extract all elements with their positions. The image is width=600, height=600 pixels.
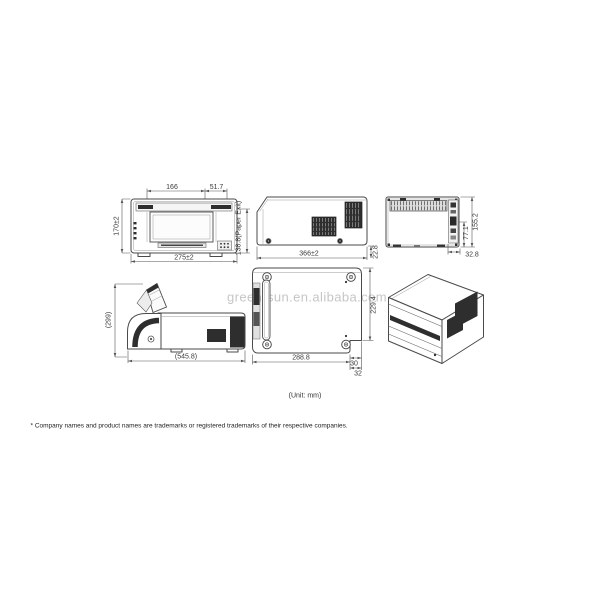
dim-front-opening-right: 51.7: [210, 184, 224, 191]
bottom-view: [253, 268, 362, 353]
dim-rear-connector: 77.1: [463, 226, 470, 240]
front-button-panel: [218, 241, 232, 250]
open-vent-rear: [230, 317, 245, 348]
side-vent-rear: [345, 202, 362, 228]
open-paper-guide: [128, 314, 162, 350]
front-top-pad-right: [211, 205, 231, 209]
open-scrap-tray: [137, 284, 167, 313]
rear-vent-grille: [390, 201, 447, 212]
dim-rear-side-step: 32.8: [465, 252, 479, 259]
dim-paper-exit-height: 138.8(Paper Exit): [236, 201, 243, 255]
front-foot-right: [210, 253, 222, 257]
watermark-text: green-sun.en.alibaba.com: [227, 290, 387, 305]
open-foot-right: [227, 349, 238, 352]
dim-open-depth: (545.8): [175, 354, 197, 361]
rear-view: [386, 197, 459, 247]
open-vent-center: [207, 329, 226, 342]
unit-note: (Unit: mm): [289, 393, 322, 400]
open-foot-left: [171, 349, 182, 352]
dim-front-opening-width: 166: [166, 184, 178, 191]
bottom-scrap-door: [253, 283, 260, 339]
dim-front-width: 275±2: [174, 255, 194, 262]
rear-connector-panel: [449, 200, 459, 243]
bottom-feet: [263, 273, 356, 349]
dim-open-height: (299): [106, 312, 113, 328]
front-door: [150, 212, 213, 242]
isometric-view: [389, 275, 484, 364]
printer-outline-drawing-page: green-sun.en.alibaba.com: [0, 0, 600, 600]
side-view: [257, 197, 367, 245]
rear-power-inlet: [450, 217, 457, 226]
front-foot-left: [138, 253, 150, 257]
dim-bottom-notch-b: 32: [354, 371, 362, 378]
front-top-pad-left: [138, 205, 153, 209]
trademark-footnote: * Company names and product names are tr…: [31, 423, 348, 430]
dim-bottom-notch-a: 30: [350, 361, 358, 368]
dim-side-depth: 366±2: [299, 251, 319, 258]
front-view: [131, 199, 237, 257]
dim-bottom-depth: 229.4: [371, 296, 378, 314]
dim-side-rear-step: 22.8: [373, 245, 380, 259]
bottom-left-slot: [263, 280, 271, 340]
rear-connector-usb: [451, 203, 457, 208]
dim-bottom-width: 288.8: [292, 355, 310, 362]
iso-power-button: [434, 354, 436, 356]
dim-rear-height: 155.2: [473, 213, 480, 231]
dim-front-height: 170±2: [114, 216, 121, 236]
side-vent-center: [312, 217, 336, 236]
dimensional-drawing: green-sun.en.alibaba.com: [0, 0, 600, 600]
rear-tab-left: [400, 198, 406, 201]
rear-tab-right: [434, 198, 440, 201]
